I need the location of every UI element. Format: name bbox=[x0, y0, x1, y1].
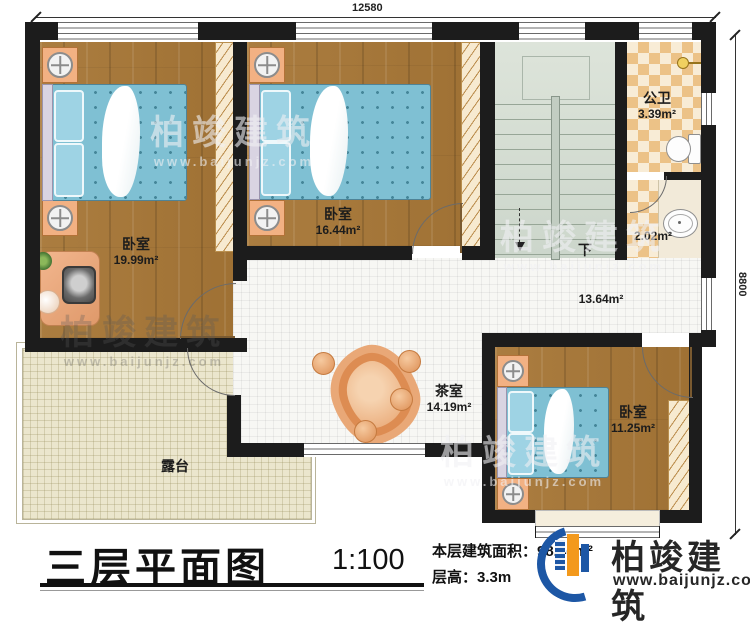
stair-direction-line bbox=[519, 208, 520, 242]
bathroom-label: 公卫 3.39m² bbox=[612, 90, 702, 121]
room-area: 2.02m² bbox=[608, 229, 698, 243]
stairs-down-label: 下 bbox=[570, 242, 600, 259]
stair-railing bbox=[551, 96, 560, 260]
room-area: 19.99m² bbox=[86, 253, 186, 267]
window bbox=[518, 22, 587, 40]
wall-segment bbox=[664, 172, 701, 180]
dimension-right-value: 8800 bbox=[736, 272, 748, 296]
window bbox=[303, 443, 427, 457]
bedroom1-label: 卧室 19.99m² bbox=[86, 236, 186, 267]
window bbox=[638, 22, 694, 40]
bedroom2-label: 卧室 16.44m² bbox=[288, 206, 388, 237]
tea-stool bbox=[354, 420, 377, 443]
wall-segment bbox=[198, 22, 295, 40]
bedroom1-pillow bbox=[54, 143, 84, 197]
title-underline-thin bbox=[40, 590, 424, 591]
wall-segment bbox=[480, 42, 495, 260]
wall-segment bbox=[585, 22, 638, 40]
lamp-icon bbox=[502, 360, 524, 382]
hall-label: 13.64m² bbox=[556, 292, 646, 306]
logo-building-icon bbox=[567, 534, 579, 576]
room-area: 3.39m² bbox=[612, 107, 702, 121]
wall-segment bbox=[658, 510, 702, 523]
room-area: 11.25m² bbox=[583, 421, 683, 435]
bedroom2-closet bbox=[461, 42, 482, 252]
logo-building-icon bbox=[581, 544, 589, 572]
bedroom1-headboard bbox=[42, 84, 53, 201]
title-underline bbox=[40, 583, 424, 587]
logo-website: www.baijunjz.com bbox=[613, 572, 750, 590]
lamp-icon bbox=[502, 483, 524, 505]
bedroom2-door-leaf bbox=[460, 203, 462, 253]
bedroom2-nightstand-top bbox=[249, 47, 285, 83]
window bbox=[295, 22, 434, 40]
bedroom2-pillow bbox=[261, 142, 291, 196]
floor-height-text: 层高：3.3m bbox=[432, 566, 511, 587]
wall-segment bbox=[227, 395, 241, 457]
wall-segment bbox=[482, 510, 535, 523]
wall-segment bbox=[701, 125, 716, 277]
room-name: 卧室 bbox=[86, 236, 186, 253]
wall-segment bbox=[482, 333, 642, 347]
stair-opening-outline bbox=[522, 56, 590, 100]
room-name: 公卫 bbox=[612, 90, 702, 107]
room-name: 露台 bbox=[125, 458, 225, 475]
bedroom1-door-leaf bbox=[180, 336, 235, 338]
tearoom-label: 茶室 14.19m² bbox=[399, 383, 499, 414]
wall-segment bbox=[615, 42, 627, 260]
floor-plan: 下 bbox=[0, 0, 750, 599]
logo-building-icon bbox=[555, 540, 565, 570]
bedroom1-chair bbox=[62, 266, 96, 304]
bedroom2-nightstand-bottom bbox=[249, 200, 285, 236]
bedroom1-nightstand-top bbox=[42, 47, 78, 83]
bedroom2-headboard bbox=[249, 84, 260, 200]
bedroom1-nightstand-bottom bbox=[42, 200, 78, 236]
lamp-icon bbox=[254, 52, 280, 78]
room-name: 卧室 bbox=[583, 404, 683, 421]
plan-scale: 1:100 bbox=[332, 544, 405, 577]
stair-arrow-icon bbox=[515, 242, 525, 251]
wall-segment bbox=[25, 22, 40, 352]
lamp-icon bbox=[47, 52, 73, 78]
bedroom3-door-leaf bbox=[690, 347, 692, 397]
room-area: 16.44m² bbox=[288, 223, 388, 237]
wall-segment bbox=[233, 42, 247, 281]
window bbox=[701, 92, 716, 127]
company-logo: 柏竣建筑 www.baijunjz.com bbox=[533, 524, 750, 599]
bedroom2-pillow bbox=[261, 90, 291, 142]
room-name: 卧室 bbox=[288, 206, 388, 223]
room-name: 茶室 bbox=[399, 383, 499, 400]
wall-segment bbox=[247, 246, 412, 260]
bedroom3-nightstand-top bbox=[497, 355, 529, 387]
shower-head-icon bbox=[677, 57, 689, 69]
bedroom1-pillow bbox=[54, 90, 84, 142]
wall-segment bbox=[462, 246, 482, 260]
lamp-icon bbox=[47, 205, 73, 231]
wall-segment bbox=[425, 443, 482, 457]
room-area: 14.19m² bbox=[399, 400, 499, 414]
tea-stool bbox=[312, 352, 335, 375]
sink-drain bbox=[678, 221, 681, 224]
bedroom3-pillow bbox=[508, 433, 534, 475]
toilet-bowl bbox=[666, 136, 691, 162]
wall-segment bbox=[701, 22, 716, 92]
wall-segment bbox=[482, 333, 495, 523]
wall-segment bbox=[432, 22, 518, 40]
room-area: 13.64m² bbox=[556, 292, 646, 306]
lamp-icon bbox=[254, 205, 280, 231]
tea-stool bbox=[398, 350, 421, 373]
dimension-line-top bbox=[35, 17, 716, 18]
bedroom1-closet bbox=[215, 42, 235, 252]
terrace-label: 露台 bbox=[125, 458, 225, 475]
bedroom3-pillow bbox=[508, 391, 534, 433]
bedroom3-nightstand-bottom bbox=[497, 478, 529, 510]
dimension-top-value: 12580 bbox=[352, 2, 383, 14]
window bbox=[57, 22, 200, 40]
wall-segment bbox=[701, 330, 716, 347]
staircase bbox=[495, 42, 615, 258]
window bbox=[701, 277, 716, 332]
bedroom3-label: 卧室 11.25m² bbox=[583, 404, 683, 435]
washroom-label: 2.02m² bbox=[608, 229, 698, 243]
stairs-down-text: 下 bbox=[570, 242, 600, 259]
